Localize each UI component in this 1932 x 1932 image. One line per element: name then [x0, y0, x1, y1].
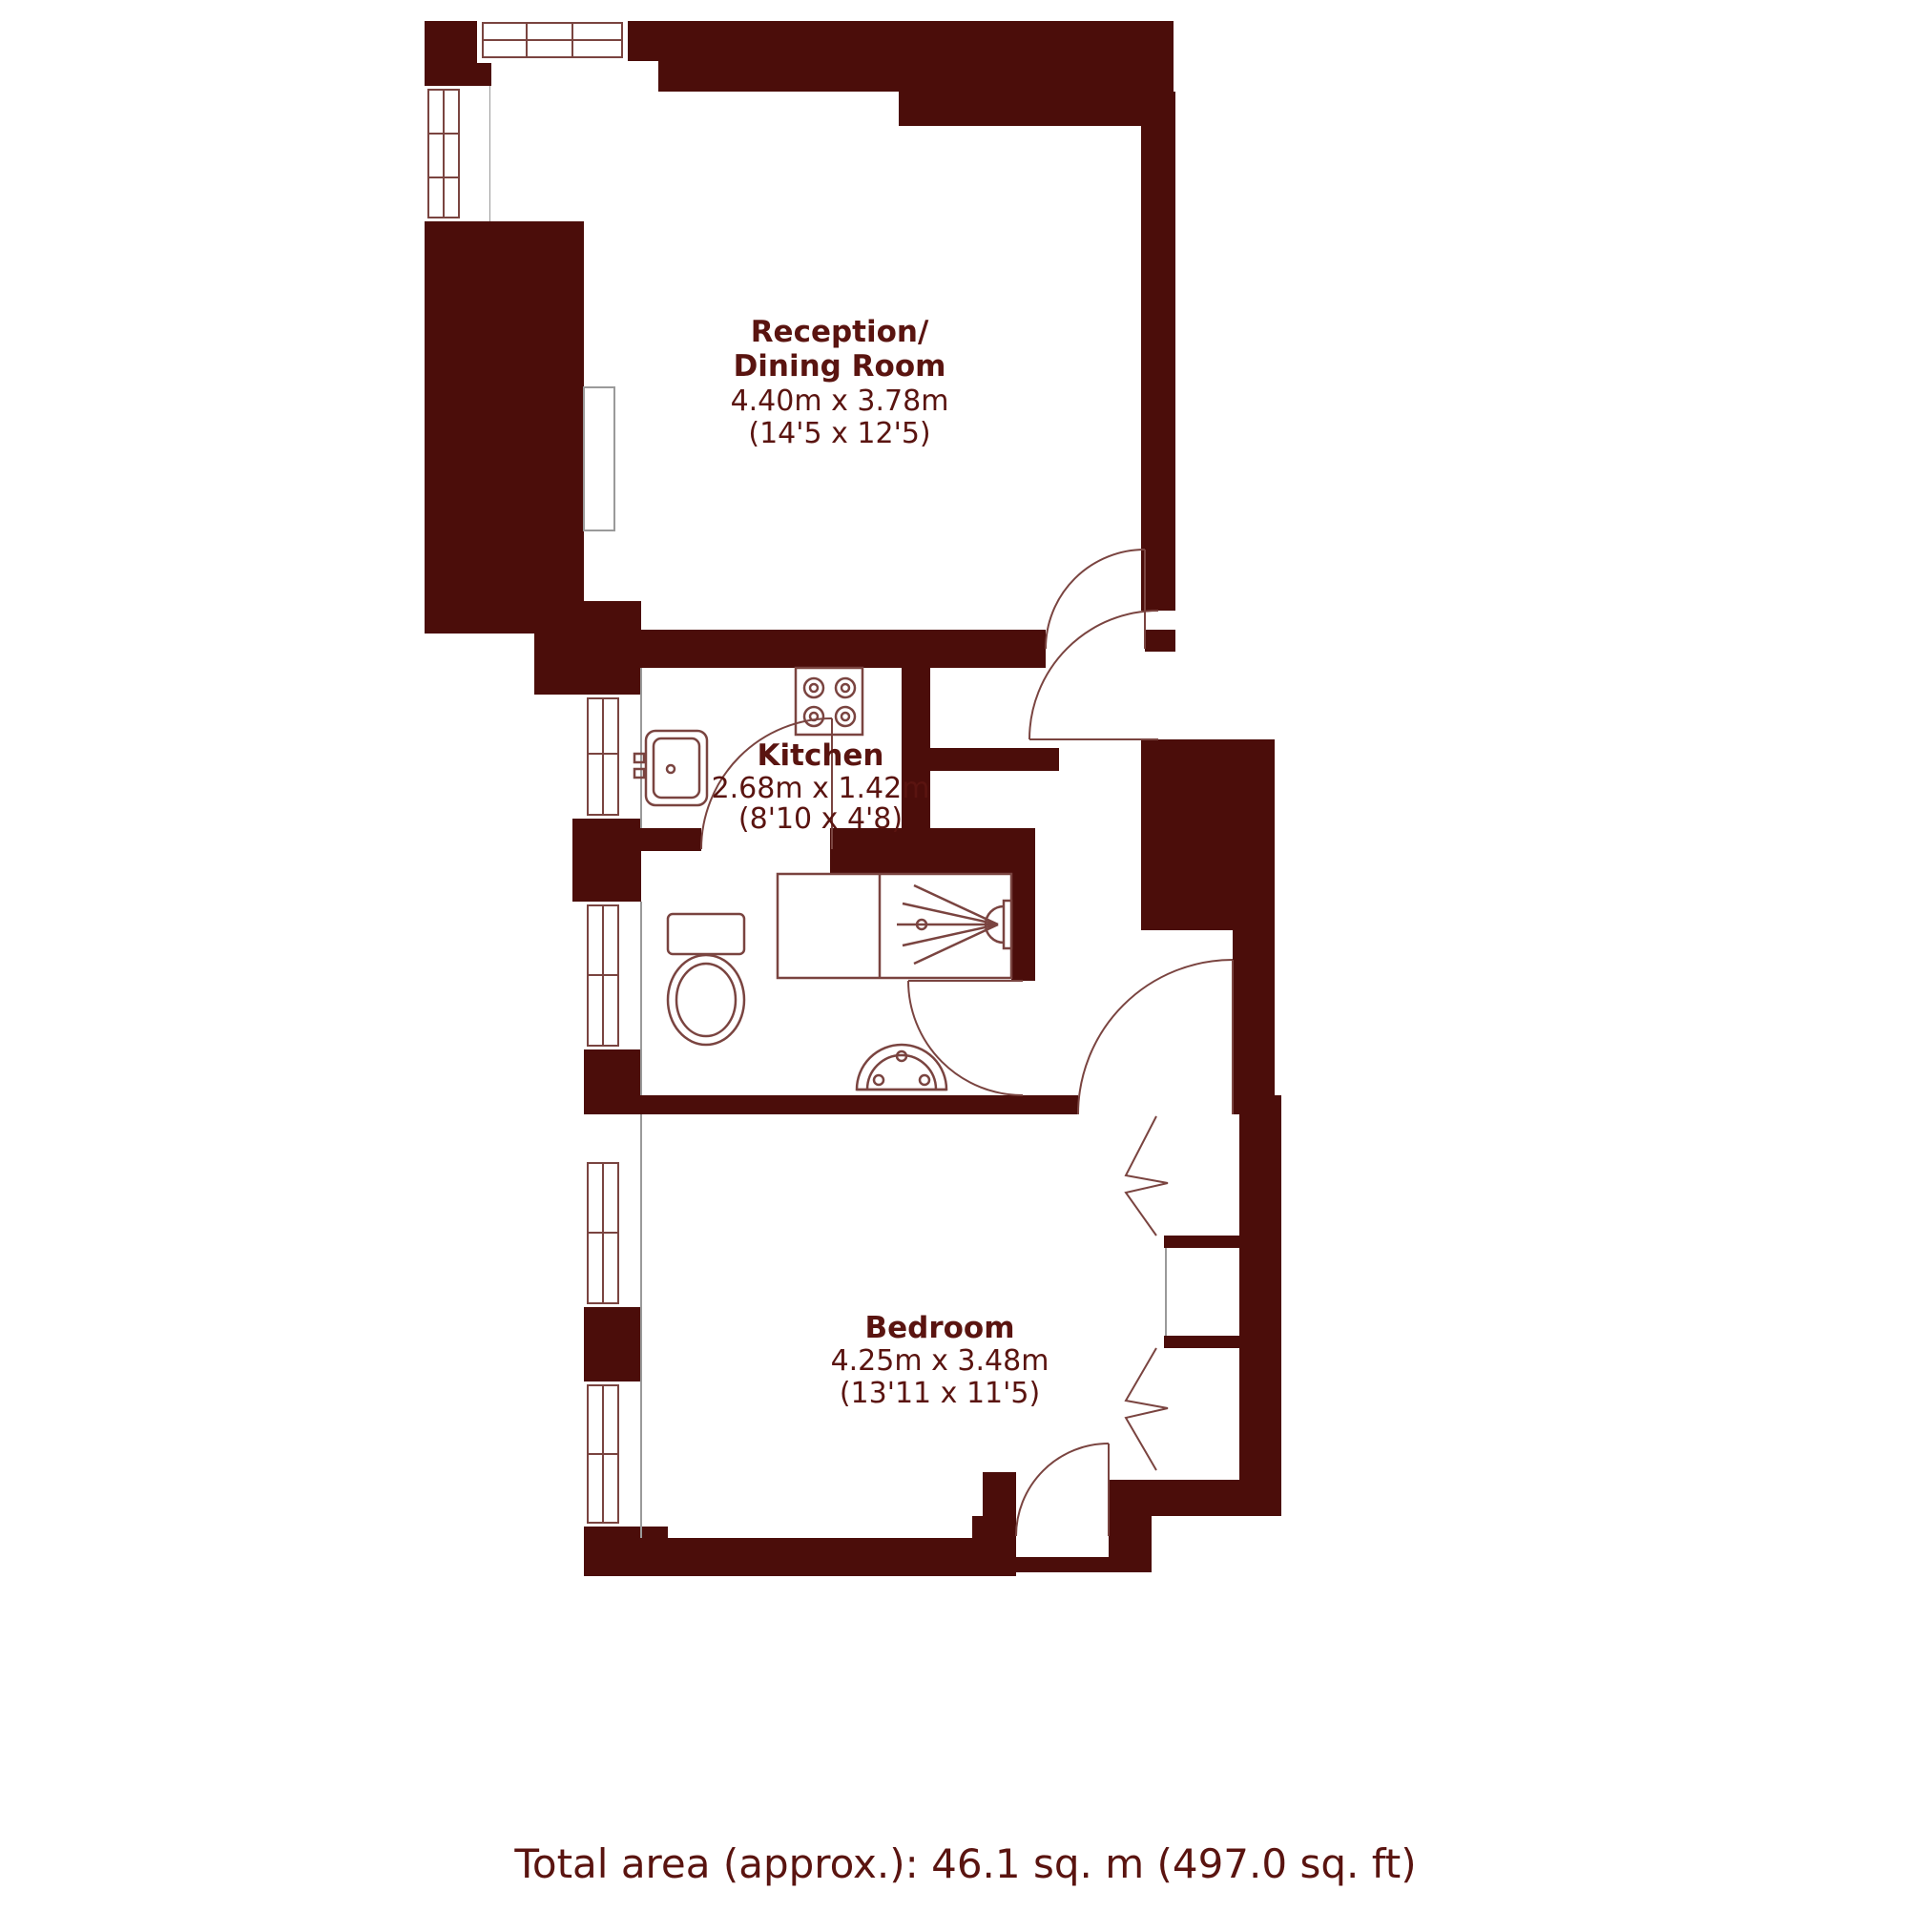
- chimney-recess: [584, 387, 614, 530]
- kitchen-sink-icon: [634, 731, 707, 805]
- reception-name-line1: Reception/: [751, 315, 929, 349]
- kitchen-name: Kitchen: [757, 738, 883, 773]
- shower-icon: [778, 874, 1011, 978]
- kitchen-size-metric: 2.68m x 1.42m: [712, 772, 930, 805]
- total-area-text: Total area (approx.): 46.1 sq. m (497.0 …: [513, 1840, 1416, 1887]
- window-icon-reception-top: [477, 15, 628, 63]
- window-icon-bathroom: [584, 902, 639, 1049]
- entry-porch-recess: [1016, 1516, 1109, 1557]
- floorplan-page: Reception/ Dining Room 4.40m x 3.78m (14…: [0, 0, 1932, 1932]
- reception-name-line2: Dining Room: [734, 349, 946, 384]
- bifold-closet-door-icon-top: [1126, 1116, 1168, 1236]
- fixtures: [634, 668, 1011, 1090]
- door-swing-icon-reception: [1046, 550, 1145, 649]
- reception-size-metric: 4.40m x 3.78m: [731, 384, 949, 418]
- door-swing-icon-front-entrance: [1029, 611, 1158, 739]
- door-swing-icon-bedroom: [1078, 960, 1233, 1114]
- bedroom-size-metric: 4.25m x 3.48m: [831, 1344, 1049, 1378]
- kitchen-size-imperial: (8'10 x 4'8): [738, 802, 903, 836]
- bedroom-size-imperial: (13'11 x 11'5): [840, 1377, 1040, 1410]
- bifold-closet-door-icon-bottom: [1126, 1348, 1168, 1470]
- reception-size-imperial: (14'5 x 12'5): [748, 417, 930, 450]
- window-icon-kitchen: [584, 695, 639, 819]
- floorplan-drawing: Reception/ Dining Room 4.40m x 3.78m (14…: [0, 0, 1932, 1932]
- window-icon-bedroom-2: [584, 1381, 639, 1527]
- toilet-icon: [668, 914, 744, 1045]
- window-icon-bedroom-1: [584, 1159, 639, 1307]
- window-icon-reception-left: [425, 86, 489, 221]
- hob-4-burner-icon: [796, 668, 862, 735]
- bedroom-name: Bedroom: [864, 1311, 1014, 1345]
